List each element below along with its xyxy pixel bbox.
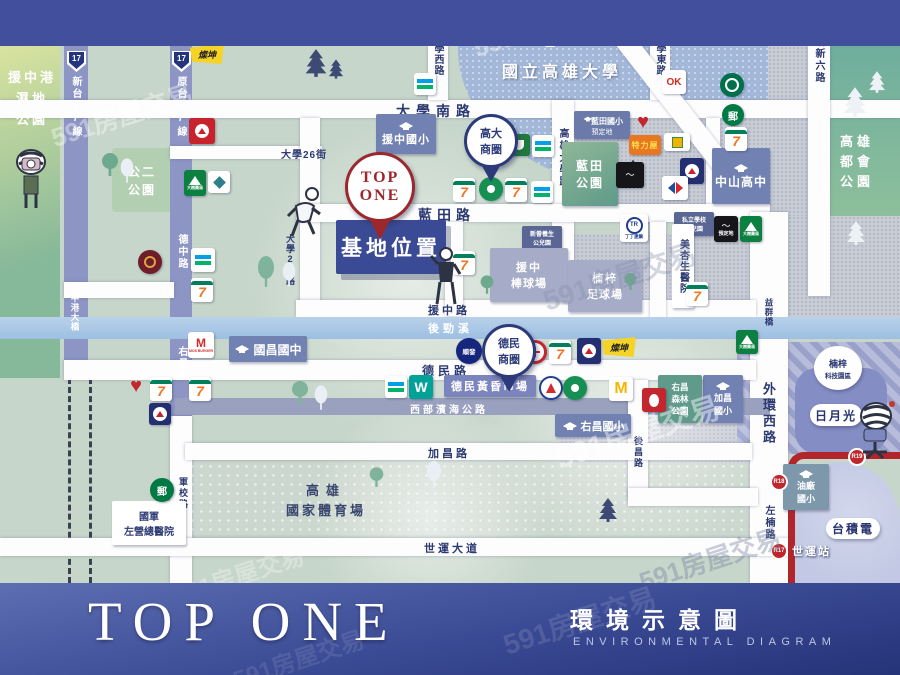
seven-eleven-logo: 7 xyxy=(150,377,172,401)
familymart-logo xyxy=(532,135,554,157)
top-one-site-pin: TOP ONE xyxy=(345,152,415,240)
road-label-daxue26: 大學26街 xyxy=(281,146,327,161)
familymart-logo xyxy=(414,73,436,95)
lantian-elementary-reserved: 藍田國小 預定地 xyxy=(574,111,630,139)
road-label-dezhong: 德中路 xyxy=(174,234,189,270)
pxmart-logo xyxy=(577,338,601,364)
dashu-pharmacy-logo: 大樹藥局 xyxy=(740,216,762,242)
pxmart-logo xyxy=(149,403,171,425)
bridge-label-yuanzhonggang: 援中港大橋 xyxy=(69,284,81,332)
coffee-shop-logo xyxy=(138,250,162,274)
mos-burger-logo: MMOS BURGER xyxy=(188,332,214,358)
top-border-bar xyxy=(0,0,900,46)
road-label-zuonan: 左楠路 xyxy=(761,505,776,541)
road-hospital-v xyxy=(650,222,666,318)
black-script-brand-logo: 〜 xyxy=(616,162,644,188)
project-brand-title: TOP ONE xyxy=(88,590,400,653)
military-hospital: 國軍 左營總醫院 xyxy=(112,501,186,545)
lantian-park: 藍田 公園 xyxy=(562,142,618,206)
green-circle-brand-logo xyxy=(563,376,587,400)
diamond-brand-logo xyxy=(208,171,230,193)
footer-title-zh: 環境示意圖 xyxy=(570,601,750,635)
heart-brand-logo xyxy=(632,112,654,132)
round-tree-icon xyxy=(290,380,310,406)
jiachang-elementary: 加昌 國小 xyxy=(703,375,743,423)
road-label-waihuan: 外環西路 xyxy=(759,382,778,446)
round-tree-icon xyxy=(100,152,120,178)
pine-tree-icon xyxy=(304,48,328,78)
heart-brand-logo xyxy=(126,377,146,395)
demin-business-circle-pin: 德民 商圈 xyxy=(482,324,536,392)
familymart-logo xyxy=(385,376,407,398)
walking-figure-illustration xyxy=(428,246,464,308)
seven-eleven-logo: 7 xyxy=(686,282,708,306)
footer-title-en: ENVIRONMENTAL DIAGRAM xyxy=(573,636,836,648)
river-label: 後勁溪 xyxy=(428,320,473,336)
carrefour-logo xyxy=(662,176,688,200)
wetland-park-label: 援中港濕地公園 xyxy=(8,68,56,130)
familymart-logo xyxy=(531,181,553,203)
dashu-pharmacy-logo: 大樹藥局 xyxy=(184,170,206,196)
zebra-on-chair-illustration xyxy=(848,396,898,460)
mrt-station-r17: R17 xyxy=(770,542,788,560)
tsmc-label: 台積電 xyxy=(826,518,880,539)
road-label-xintai17: 新台17線 xyxy=(68,76,83,138)
road-label-jiachang: 加昌路 xyxy=(428,445,470,461)
environmental-map-poster: 後勁溪 R19 R18 R17 世運站 17 17 新台17線 原台17線 大學… xyxy=(0,0,900,675)
pine-tree-icon xyxy=(846,220,866,246)
reserved-site-brand-logo: 〜預定地 xyxy=(714,216,738,242)
oil-refinery-elementary: 油廠 國小 xyxy=(783,464,829,510)
road-label-coast: 西部濱海公路 xyxy=(410,401,488,416)
seven-eleven-logo: 7 xyxy=(191,278,213,302)
graduation-cap-icon xyxy=(234,344,250,354)
yuanzhong-baseball-field: 援中 棒球場 xyxy=(490,248,568,302)
graduation-cap-icon xyxy=(562,421,578,431)
road-label-yuantai17: 原台17線 xyxy=(173,76,188,138)
pine-tree-icon xyxy=(328,58,344,80)
mrt-station-r18: R18 xyxy=(770,473,788,491)
teli-house-logo: 特力屋 xyxy=(629,135,661,155)
road-label-youchang-st: 右昌街 xyxy=(174,346,189,382)
pine-tree-icon xyxy=(868,70,886,94)
nuk-university-label: 國立高雄大學 xyxy=(502,58,622,82)
round-tree-icon xyxy=(479,274,495,296)
leaf-tree-icon xyxy=(424,460,444,490)
starbucks-logo xyxy=(720,73,744,97)
road-houchang-h xyxy=(628,488,758,506)
leaf-tree-icon xyxy=(312,384,330,412)
leaf-tree-icon xyxy=(280,262,298,288)
shiyun-station-label: 世運站 xyxy=(792,543,831,559)
road-label-shiyun: 世運大道 xyxy=(424,540,480,556)
youchang-elementary: 右昌國小 xyxy=(555,414,631,437)
familymart-logo xyxy=(191,248,215,272)
round-tree-icon xyxy=(368,466,385,489)
watsons-logo: W xyxy=(409,375,433,399)
dashu-pharmacy-logo: 大樹藥局 xyxy=(736,330,758,354)
running-figure-illustration xyxy=(282,186,326,248)
national-stadium-label: 高雄 國家體育場 xyxy=(286,481,366,520)
pine-tree-icon xyxy=(842,86,868,118)
post-office-logo: 郵 xyxy=(150,478,174,502)
seven-eleven-logo: 7 xyxy=(725,127,747,151)
kfc-logo xyxy=(642,388,666,412)
yuanzhong-elementary: 援中國小 xyxy=(376,114,436,154)
zebra-photographer-illustration xyxy=(10,134,52,210)
care-park-label: 新眷養生 公兒園 xyxy=(522,226,562,250)
graduation-cap-icon xyxy=(798,469,814,479)
graduation-cap-icon xyxy=(733,163,749,173)
guochang-junior-high: 國昌國中 xyxy=(229,336,307,362)
round-tree-icon xyxy=(623,272,638,292)
white-box-brand-logo xyxy=(664,133,690,151)
leaf-tree-icon xyxy=(118,158,136,184)
graduation-cap-icon xyxy=(398,121,414,131)
pxmart-red-logo xyxy=(189,118,215,144)
mcdonalds-logo: M xyxy=(609,377,633,401)
nanzih-tech-park-label: 楠梓 科技園區 xyxy=(814,346,862,390)
bridge-label-yiqun: 益群橋 xyxy=(763,298,775,327)
gaoda-business-circle-pin: 高大 商圈 xyxy=(464,114,518,182)
road-label-houchang: 後昌路 xyxy=(632,436,645,469)
metro-park-label: 高雄都會公園 xyxy=(840,132,874,192)
zhongshan-high-school: 中山高中 xyxy=(712,148,770,204)
dandan-burger-logo xyxy=(539,376,563,400)
ok-mart-logo: OK xyxy=(662,70,686,94)
seven-eleven-logo: 7 xyxy=(189,377,211,401)
tingting-pharmacy-logo: TR丁丁連鎖 xyxy=(620,214,648,242)
post-office-logo: 郵 xyxy=(722,104,744,126)
sunfar-3c-logo: 順發 xyxy=(456,338,482,364)
pine-tree-icon xyxy=(598,496,618,524)
seven-eleven-logo: 7 xyxy=(549,340,571,364)
graduation-cap-icon xyxy=(715,381,731,391)
leaf-tree-icon xyxy=(254,256,278,288)
